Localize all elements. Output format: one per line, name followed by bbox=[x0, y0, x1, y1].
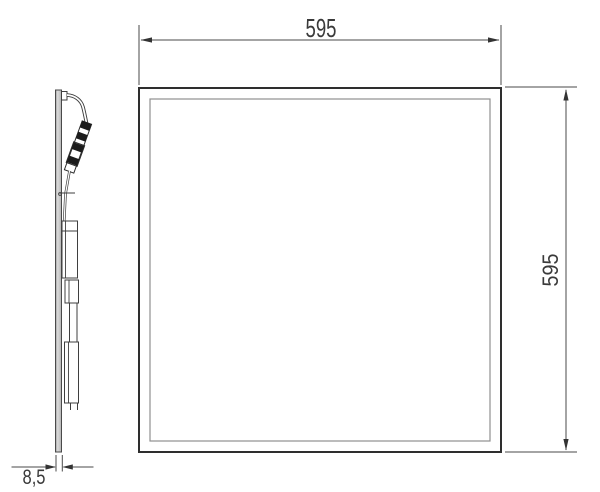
panel-edge-profile bbox=[56, 90, 62, 452]
width-dimension-label: 595 bbox=[306, 13, 337, 43]
thickness-dimension: 8,5 bbox=[12, 455, 94, 489]
driver-box-top bbox=[62, 221, 78, 278]
height-dimension: 595 bbox=[505, 87, 577, 452]
arrowhead-inward-left-icon bbox=[62, 464, 73, 469]
arrowhead-right-icon bbox=[488, 37, 500, 42]
arrowhead-up-icon bbox=[563, 89, 568, 101]
driver-box-middle bbox=[65, 280, 79, 303]
technical-drawing-page: 595 595 8,5 bbox=[0, 0, 600, 492]
front-view bbox=[139, 88, 501, 452]
driver-box-bottom bbox=[65, 342, 79, 410]
bracket-link bbox=[70, 303, 78, 342]
arrowhead-inward-right-icon bbox=[46, 464, 57, 469]
arrowhead-left-icon bbox=[141, 37, 153, 42]
width-dimension: 595 bbox=[139, 13, 501, 85]
driver-wire bbox=[64, 171, 69, 221]
cable-outlet-nub bbox=[62, 92, 68, 101]
cable-connector-icon bbox=[64, 121, 93, 174]
power-cable bbox=[67, 95, 87, 123]
thickness-dimension-label: 8,5 bbox=[23, 466, 46, 489]
height-dimension-label: 595 bbox=[538, 254, 563, 287]
panel-outer-frame bbox=[139, 88, 501, 452]
panel-dimension-drawing: 595 595 8,5 bbox=[0, 0, 600, 492]
arrowhead-down-icon bbox=[563, 439, 568, 451]
side-view bbox=[56, 90, 93, 452]
